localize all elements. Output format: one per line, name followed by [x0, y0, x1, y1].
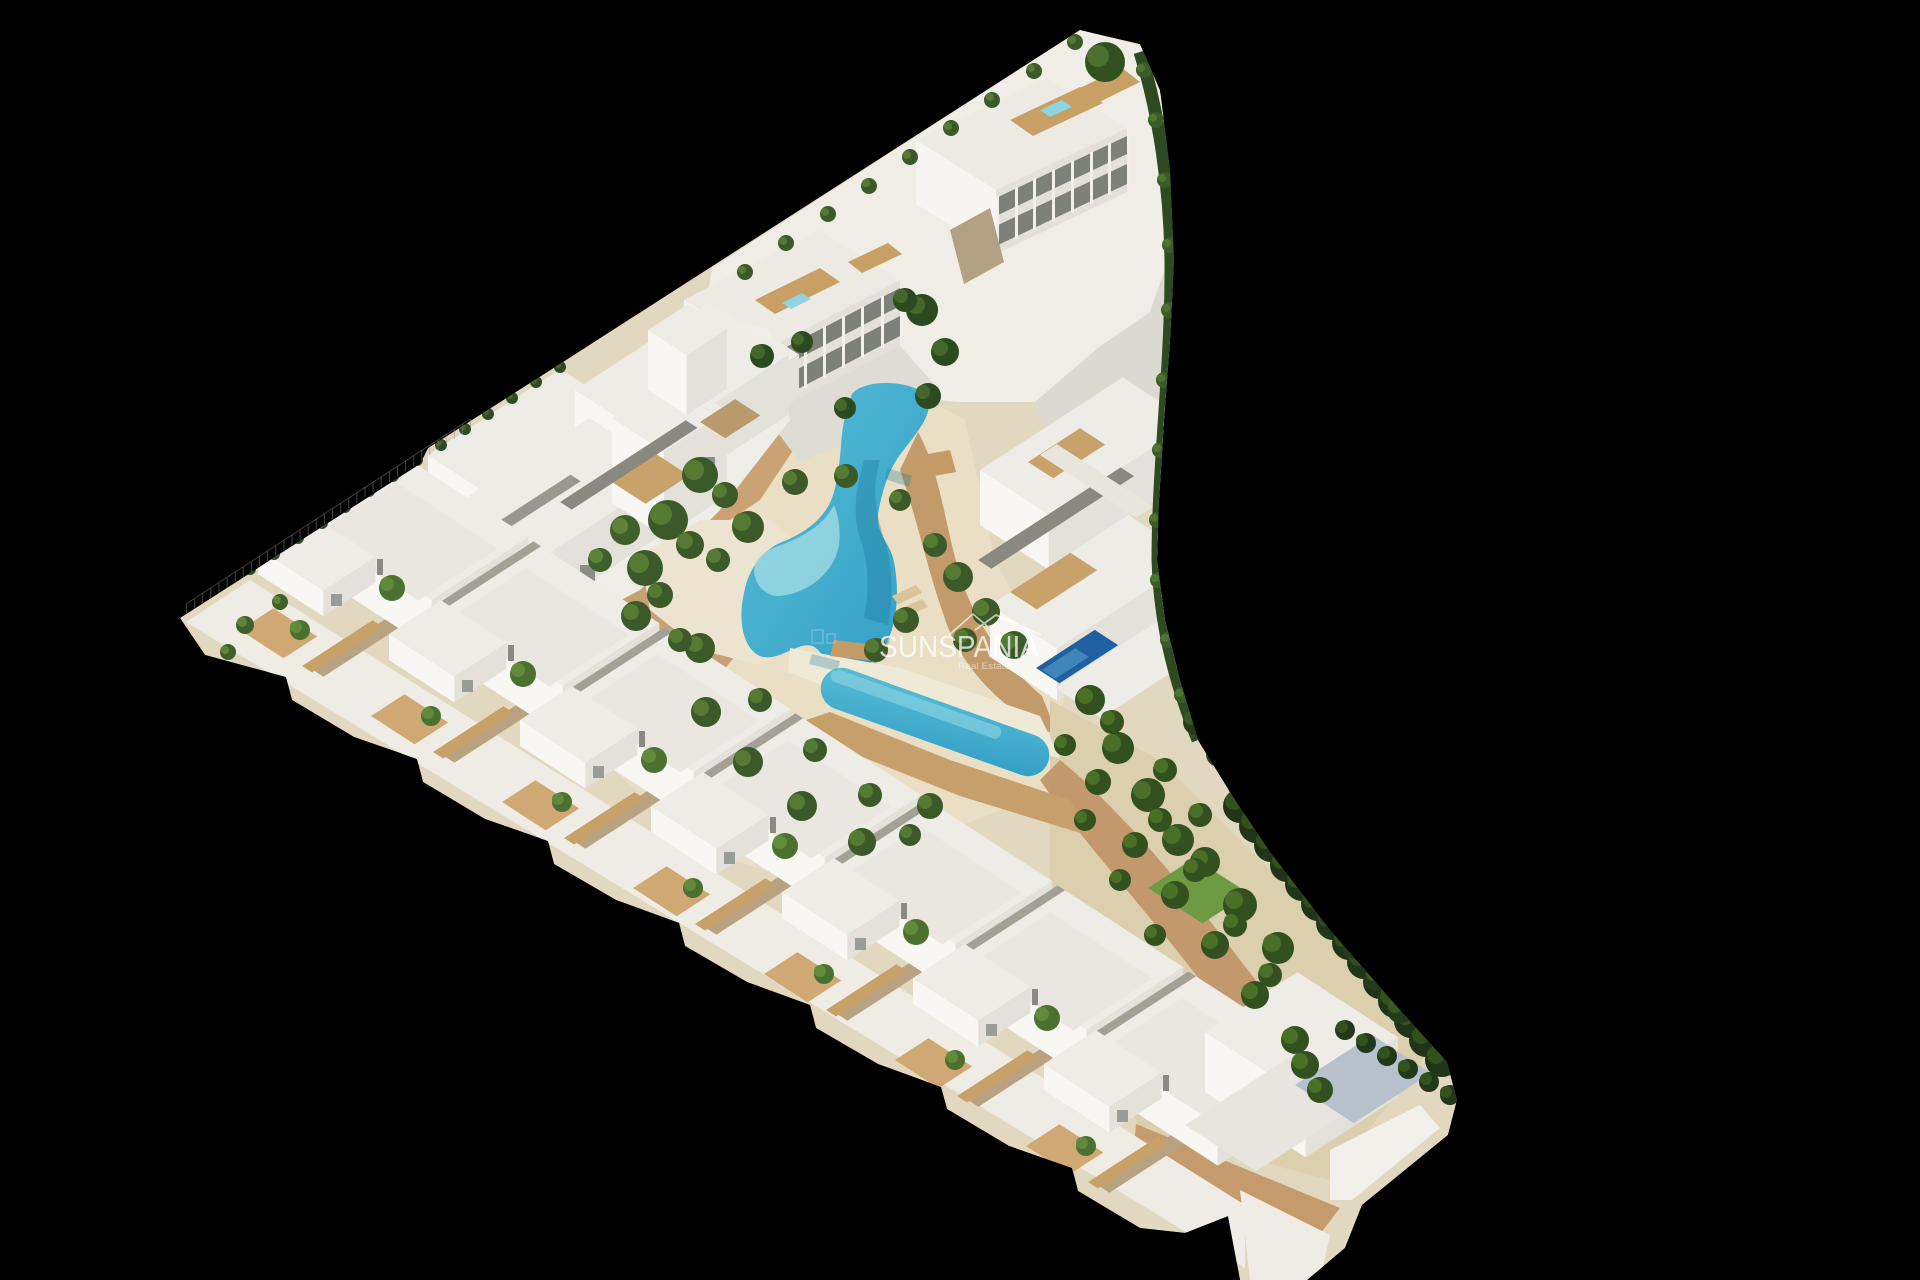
- svg-text:SUNSPANIA: SUNSPANIA: [879, 629, 1039, 664]
- svg-text:Real Estate: Real Estate: [958, 661, 1010, 672]
